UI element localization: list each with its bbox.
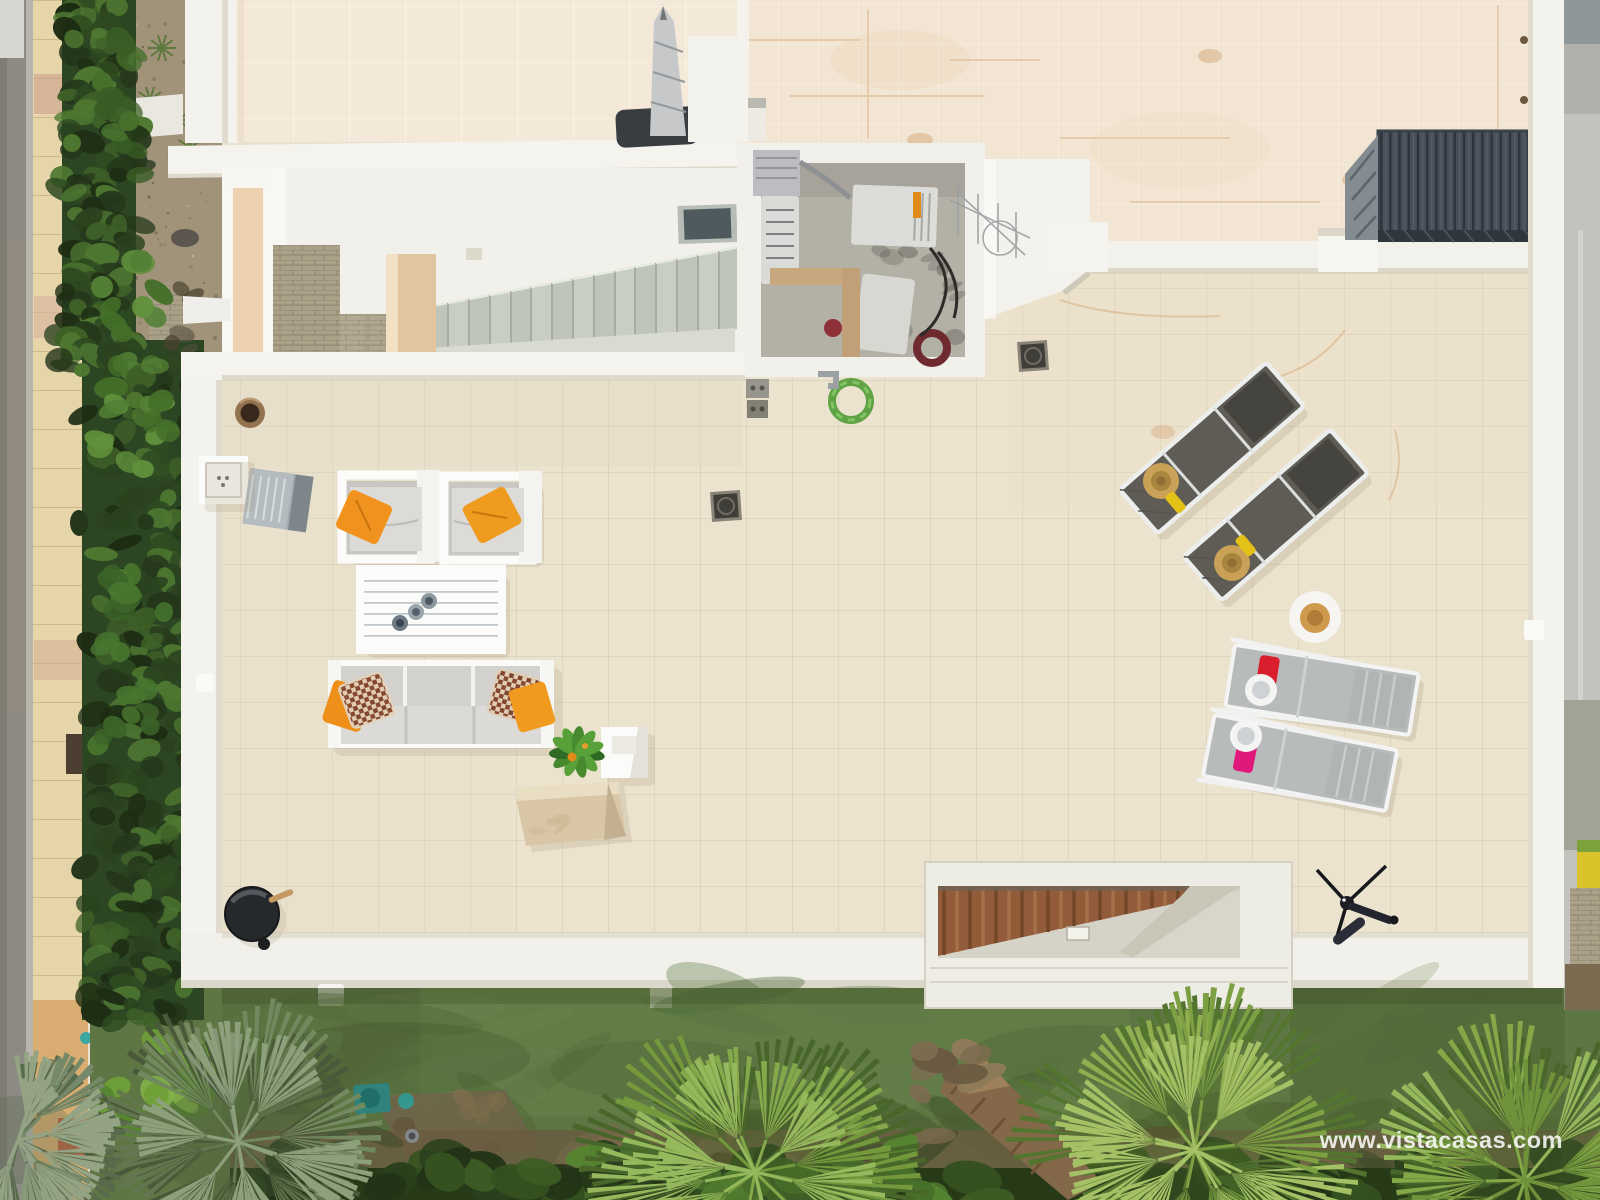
- svg-text:www.vistacasas.com: www.vistacasas.com: [1319, 1127, 1563, 1153]
